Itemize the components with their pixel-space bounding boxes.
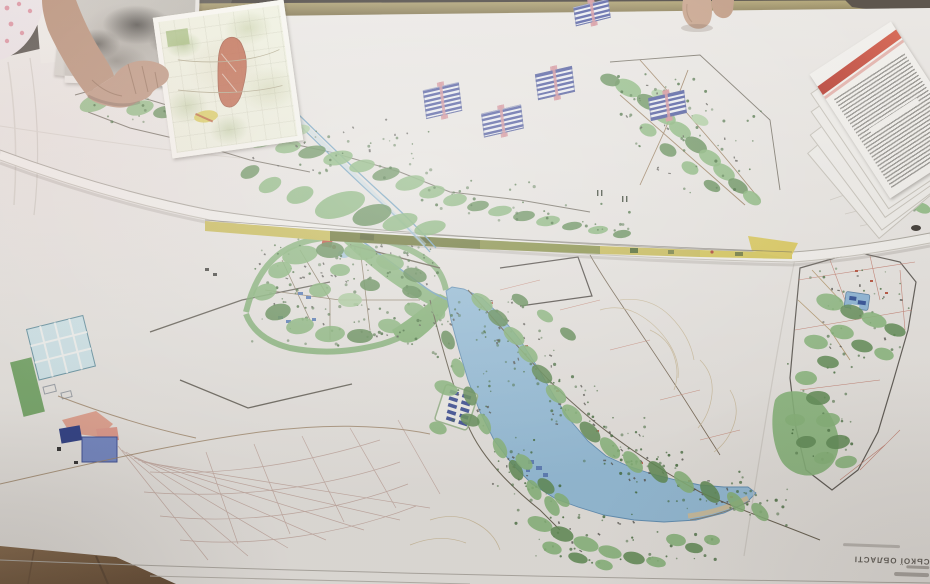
left-hand: [0, 0, 169, 108]
fingertips: [681, 0, 734, 32]
forearm: [42, 0, 114, 94]
finger: [712, 0, 734, 18]
hands-layer: [0, 0, 930, 584]
photo-of-planning-maps: СЬКОЇ ОБЛАСТІ: [0, 0, 930, 584]
